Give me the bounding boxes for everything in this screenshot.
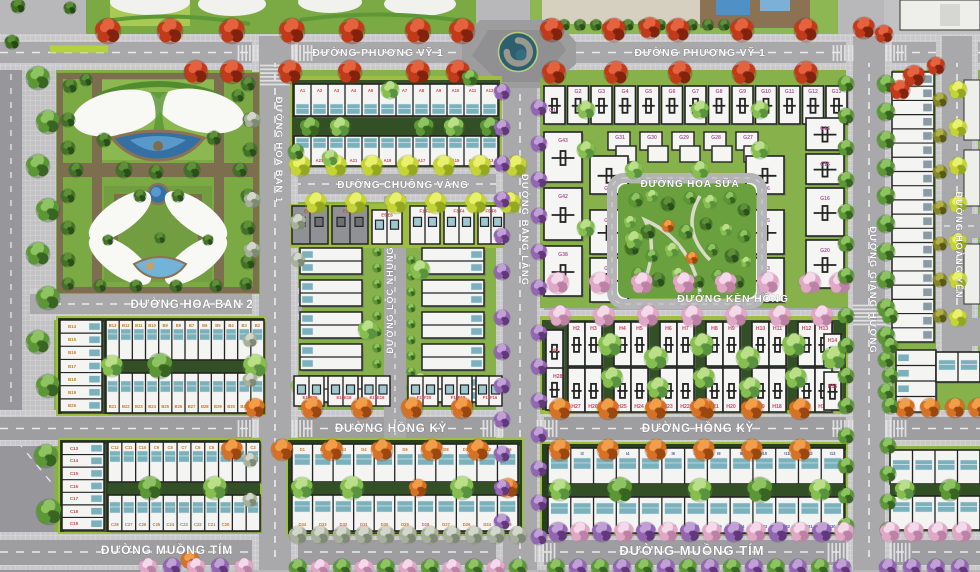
svg-text:ĐƯỜNG HOA BAN 1: ĐƯỜNG HOA BAN 1	[273, 97, 285, 204]
svg-text:ĐƯỜNG HOA SỮA: ĐƯỜNG HOA SỮA	[640, 177, 739, 190]
svg-text:ĐƯỜNG MUỒNG TÍM: ĐƯỜNG MUỒNG TÍM	[101, 542, 233, 557]
svg-text:ĐƯỜNG LỘC NHUNG: ĐƯỜNG LỘC NHUNG	[384, 246, 395, 353]
svg-text:ĐƯỜNG HỒNG KỲ: ĐƯỜNG HỒNG KỲ	[642, 422, 754, 435]
svg-text:ĐƯỜNG KÈN HỒNG: ĐƯỜNG KÈN HỒNG	[677, 292, 789, 305]
svg-text:ĐƯỜNG BẰNG LĂNG: ĐƯỜNG BẰNG LĂNG	[519, 174, 531, 286]
svg-text:ĐƯỜNG HOA BAN 2: ĐƯỜNG HOA BAN 2	[131, 298, 254, 311]
svg-text:ĐƯỜNG MUỒNG TÍM: ĐƯỜNG MUỒNG TÍM	[619, 543, 764, 558]
svg-text:ĐƯỜNG PHƯỢNG VỸ 1: ĐƯỜNG PHƯỢNG VỸ 1	[634, 46, 765, 59]
svg-text:ĐƯỜNG GIÁNG HƯƠNG: ĐƯỜNG GIÁNG HƯƠNG	[867, 226, 879, 354]
svg-text:ĐƯỜNG PHƯỢNG VỸ 1: ĐƯỜNG PHƯỢNG VỸ 1	[312, 46, 443, 59]
svg-text:ĐƯỜNG CHUÔNG VÀNG: ĐƯỜNG CHUÔNG VÀNG	[337, 178, 469, 191]
svg-text:ĐƯỜNG HOÀNG YẾN: ĐƯỜNG HOÀNG YẾN	[954, 192, 965, 299]
svg-text:ĐƯỜNG HỒNG KỲ: ĐƯỜNG HỒNG KỲ	[335, 422, 447, 435]
